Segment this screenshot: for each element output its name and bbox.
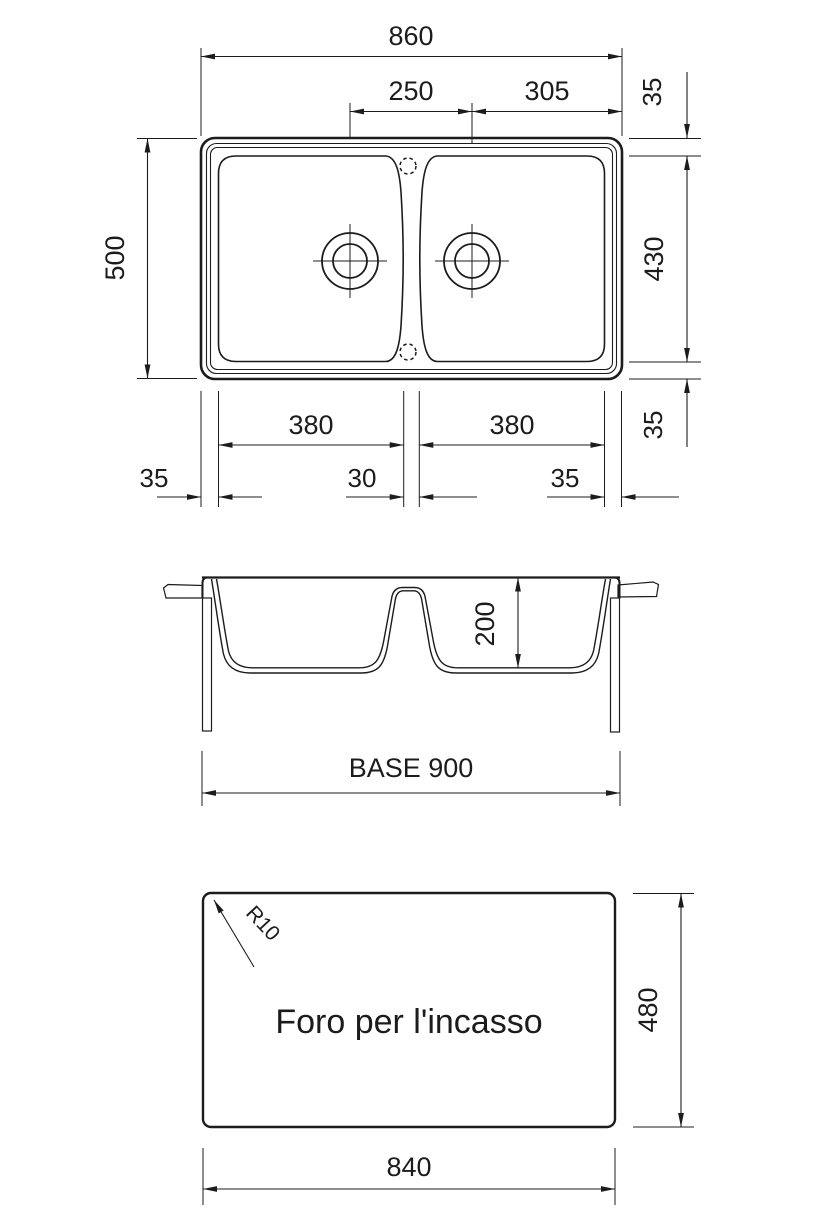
- dim-bottom-rows: 380 380 35 30 35: [140, 391, 679, 507]
- right-bowl: [420, 156, 605, 362]
- dim-r10: R10: [214, 900, 284, 967]
- dim-840-label: 840: [386, 1152, 431, 1182]
- worktop-left: [164, 585, 203, 599]
- sink-rim-line-1: [207, 144, 617, 374]
- rim-hook-right: [615, 578, 620, 599]
- dim-430-label: 430: [639, 236, 669, 281]
- dim-250-label: 250: [388, 76, 433, 106]
- cutout-caption: Foro per l'incasso: [275, 1003, 542, 1041]
- dim-35-left-label: 35: [140, 463, 169, 493]
- dim-right-column: 35 430 35: [629, 72, 701, 447]
- left-drain: [313, 224, 387, 298]
- dim-380-left-label: 380: [288, 410, 333, 440]
- dim-35-bottom-right-label: 35: [638, 411, 668, 440]
- dim-30-label: 30: [348, 463, 377, 493]
- worktop-right: [618, 582, 659, 597]
- dim-380-right-label: 380: [489, 410, 534, 440]
- right-drain: [435, 224, 509, 298]
- dim-500-label: 500: [100, 235, 130, 280]
- dim-860-label: 860: [388, 21, 433, 51]
- tap-hole-bottom: [400, 344, 416, 360]
- dim-200: 200: [470, 578, 518, 669]
- dim-250-305: 250 305: [350, 76, 622, 143]
- dim-200-label: 200: [470, 601, 500, 646]
- tap-hole-top: [400, 158, 416, 174]
- dim-r10-label: R10: [241, 902, 284, 946]
- cabinet-wall-right: [611, 598, 620, 732]
- dim-840: 840: [203, 1148, 615, 1205]
- dim-500: 500: [100, 139, 197, 379]
- technical-drawing-page: 860 250 305 35 430 35: [0, 0, 813, 1220]
- rim-hook-left: [203, 578, 208, 599]
- dim-480-label: 480: [633, 987, 663, 1032]
- left-bowl: [219, 156, 404, 362]
- sink-top-view: 860 250 305 35 430 35: [100, 21, 701, 507]
- sink-rim-line-2: [211, 148, 613, 370]
- bowl-profile-outer: [212, 579, 611, 673]
- dim-480: 480: [633, 894, 694, 1128]
- dim-base-900-label: BASE 900: [349, 753, 474, 783]
- worktop-cutout-view: R10 Foro per l'incasso 480 840: [203, 893, 694, 1205]
- sink-section-view: 200 BASE 900: [164, 578, 659, 807]
- sink-dimension-drawing: 860 250 305 35 430 35: [0, 0, 813, 1220]
- bowl-profile-inner: [217, 579, 606, 668]
- dim-base-900: BASE 900: [202, 751, 620, 806]
- dim-305-label: 305: [524, 76, 569, 106]
- cabinet-wall-left: [203, 598, 212, 731]
- dim-35-mid-right-label: 35: [551, 463, 580, 493]
- sink-outer-edge: [201, 138, 622, 379]
- dim-35-top-right-label: 35: [637, 78, 667, 107]
